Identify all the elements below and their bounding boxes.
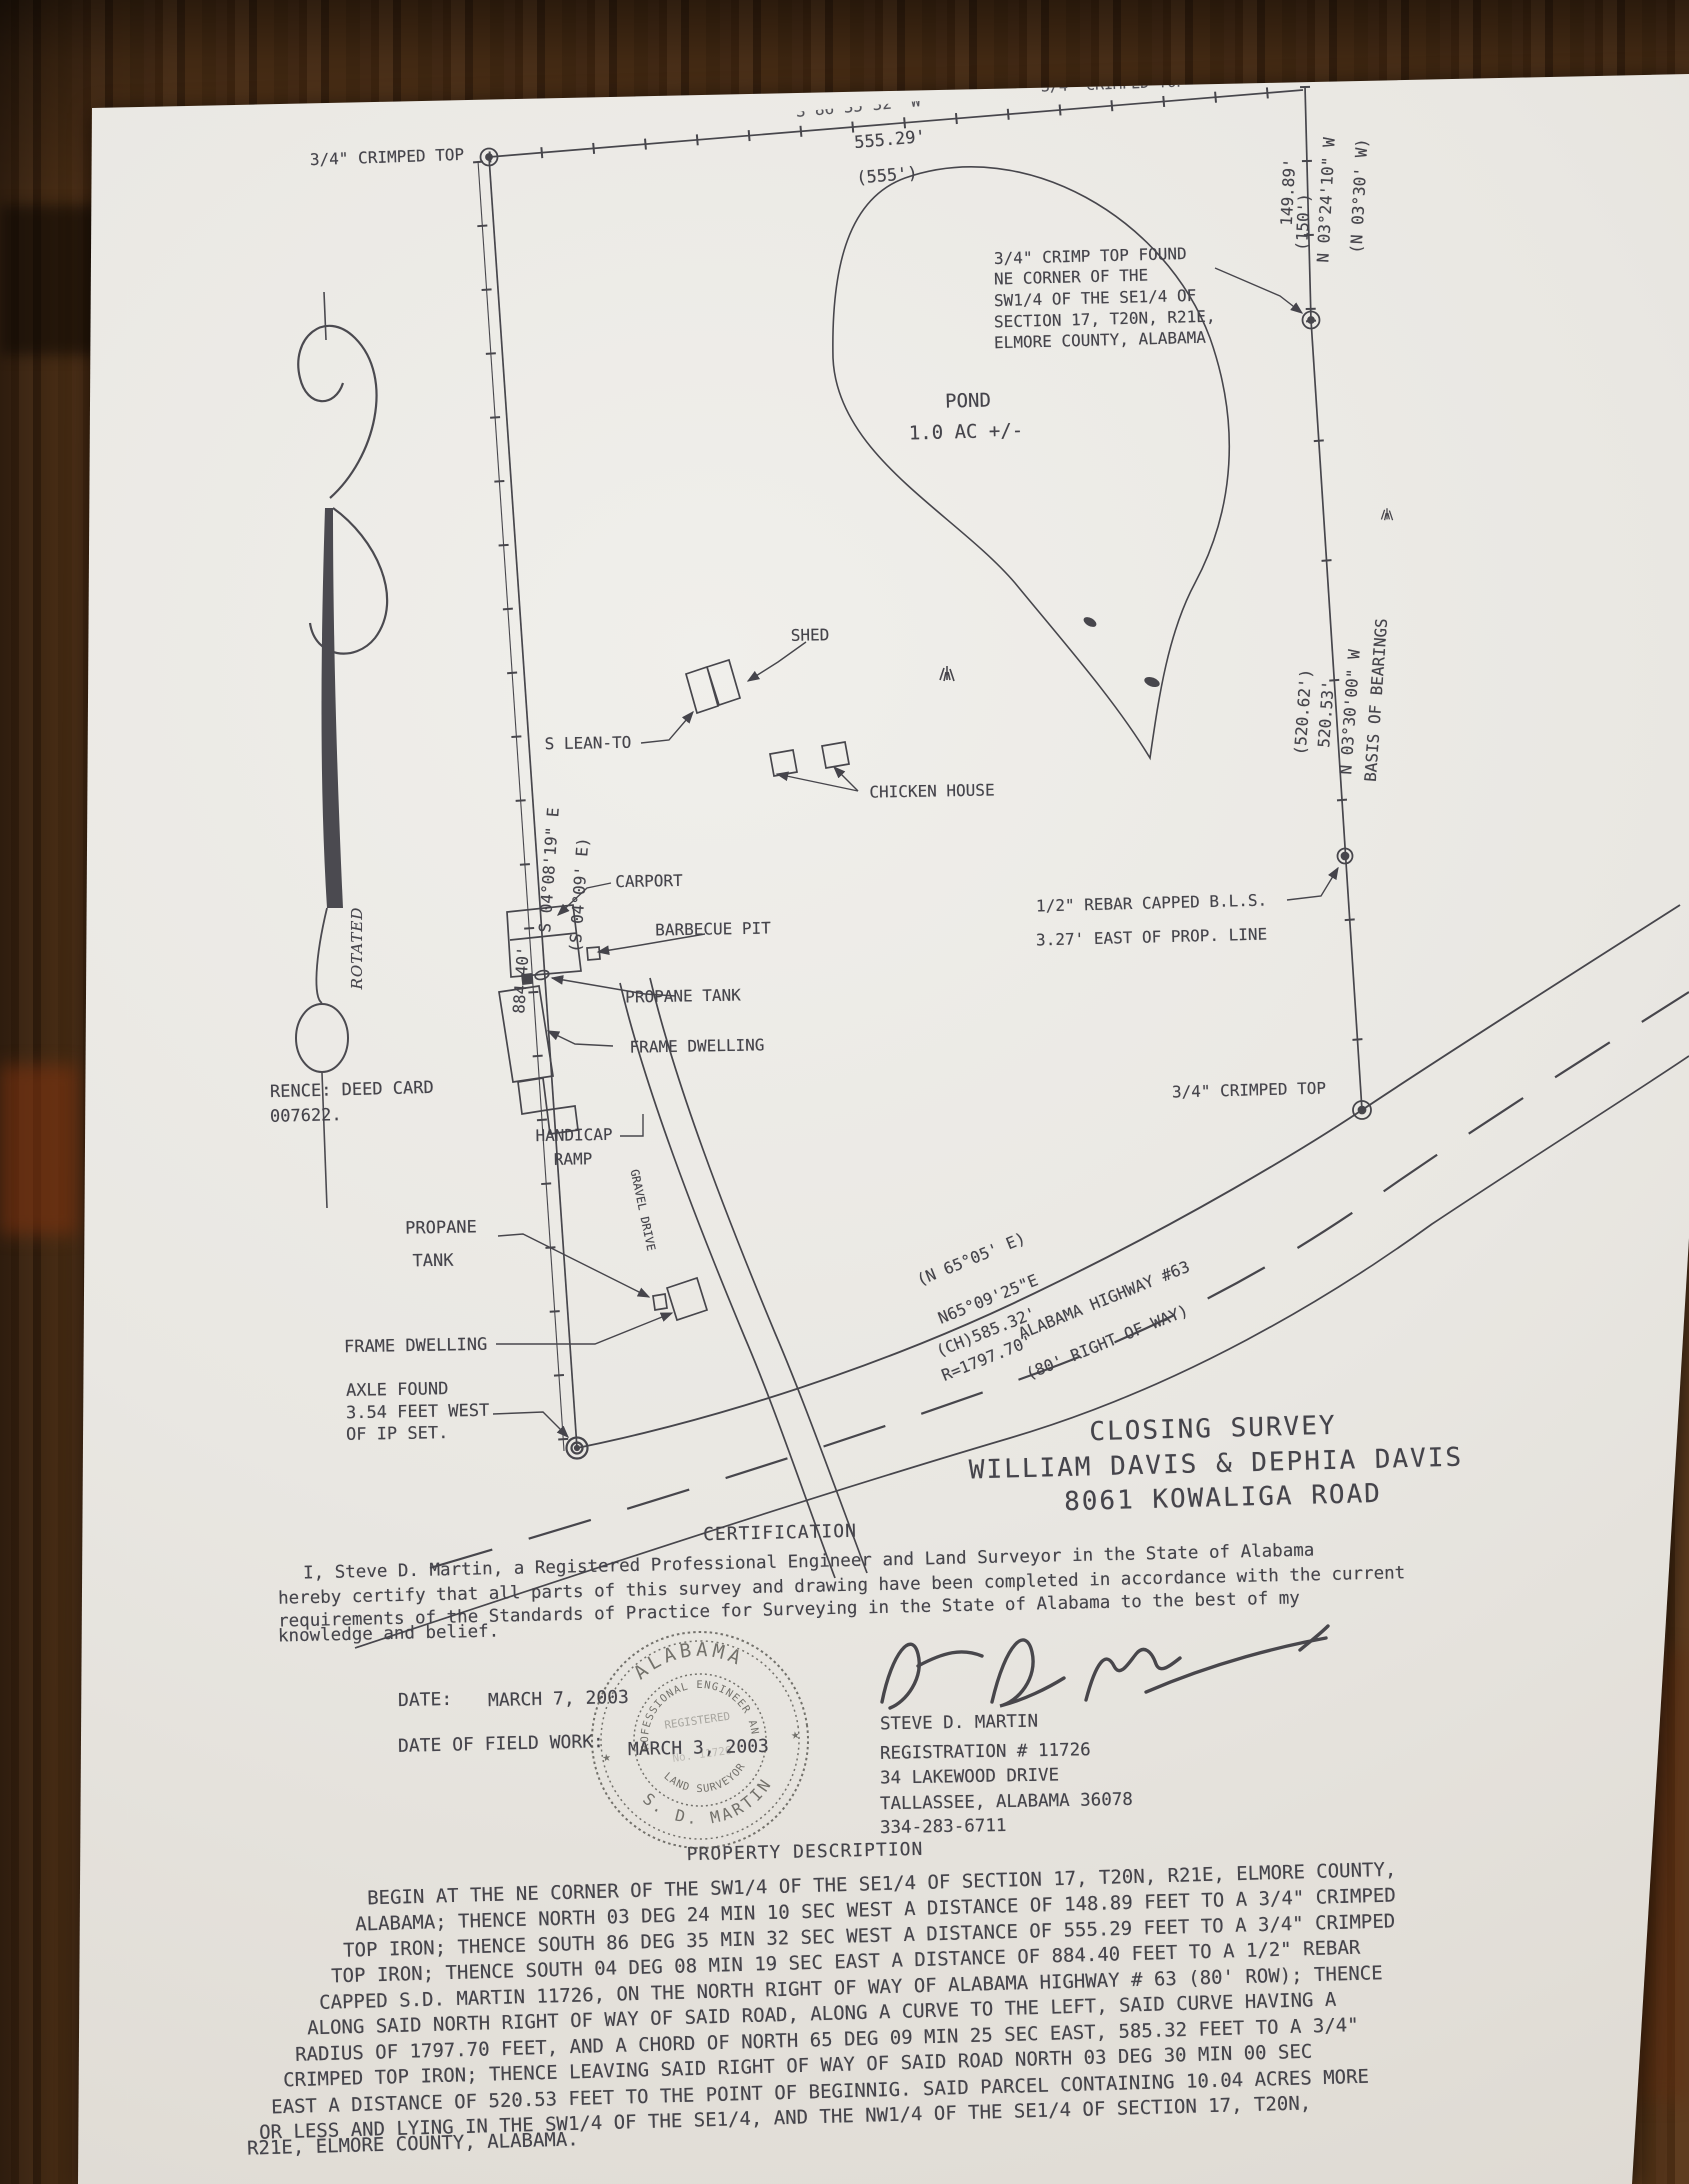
axle-note-3: OF IP SET.	[346, 1423, 449, 1445]
east-line2-bearing: N 03°30'00" W	[1336, 649, 1364, 775]
handicap-label-2: RAMP	[554, 1149, 593, 1169]
rebar-note-1: 1/2" REBAR CAPPED B.L.S.	[1036, 890, 1268, 915]
survey-paper: 3/4" CRIMPED TOPS 86°35'32" W555.29'(555…	[0, 0, 1689, 2184]
pond-area: 1.0 AC +/-	[909, 420, 1024, 445]
frame-dwelling-lower-label: FRAME DWELLING	[344, 1335, 488, 1357]
certification-line-4: knowledge and belief.	[278, 1621, 500, 1646]
fieldwork-label: DATE OF FIELD WORK:	[398, 1731, 604, 1757]
nw-monument-label: 3/4" CRIMPED TOP	[310, 145, 465, 169]
pond-label: POND	[945, 389, 991, 412]
m2-label: 3/4" CRIMPED TOP	[1172, 1078, 1327, 1101]
east-line2-distance: 520.53'	[1314, 680, 1338, 749]
highway-name: ALABAMA HIGHWAY #63	[1016, 1257, 1193, 1343]
north-line-distance: 555.29'	[853, 127, 926, 153]
plat-text-layer: 3/4" CRIMPED TOPS 86°35'32" W555.29'(555…	[0, 0, 1689, 2184]
deed-reference-1: RENCE: DEED CARD	[270, 1078, 434, 1102]
certification-heading: CERTIFICATION	[703, 1521, 857, 1545]
east-line1-bearing: N 03°24'10" W	[1313, 137, 1339, 263]
lean-to-label: S LEAN-TO	[544, 733, 631, 754]
paper-shadow-wrap: 3/4" CRIMPED TOPS 86°35'32" W555.29'(555…	[0, 0, 1689, 2184]
chicken-house-label: CHICKEN HOUSE	[869, 780, 995, 801]
rotated-note: ROTATED	[348, 907, 366, 990]
m1-note-5: ELMORE COUNTY, ALABAMA	[994, 328, 1206, 353]
survey-address: 8061 KOWALIGA ROAD	[1064, 1479, 1382, 1517]
rebar-note-2: 3.27' EAST OF PROP. LINE	[1036, 924, 1268, 949]
west-line-distance: 884.40'	[509, 946, 533, 1015]
date-label: DATE:	[398, 1689, 453, 1711]
fieldwork-value: MARCH 3, 2003	[628, 1736, 769, 1760]
north-line-bearing: S 86°35'32" W	[795, 91, 921, 121]
m1-note-3: SW1/4 OF THE SE1/4 OF	[994, 286, 1197, 310]
surveyor-phone: 334-283-6711	[880, 1816, 1007, 1838]
gravel-drive-label: GRAVEL DRIVE	[628, 1168, 659, 1252]
date-value: MARCH 7, 2003	[488, 1687, 629, 1711]
property-description-heading: PROPERTY DESCRIPTION	[686, 1839, 923, 1865]
surveyor-registration: REGISTRATION # 11726	[880, 1740, 1091, 1764]
axle-note-1: AXLE FOUND	[346, 1379, 449, 1401]
surveyor-street: 34 LAKEWOOD DRIVE	[880, 1765, 1059, 1788]
survey-title: CLOSING SURVEY	[1089, 1411, 1337, 1447]
west-line-bearing: S 04°08'19" E	[535, 807, 563, 933]
west-line-bearing-deed: (S 04°09' E)	[565, 837, 592, 954]
axle-note-2: 3.54 FEET WEST	[346, 1401, 490, 1423]
surveyor-city: TALLASSEE, ALABAMA 36078	[880, 1790, 1133, 1814]
shed-upper-label: SHED	[791, 625, 830, 645]
scanned-survey-photo: 3/4" CRIMPED TOPS 86°35'32" W555.29'(555…	[0, 0, 1689, 2184]
handicap-label-1: HANDICAP	[535, 1125, 612, 1145]
survey-owners: WILLIAM DAVIS & DEPHIA DAVIS	[969, 1443, 1464, 1486]
barbecue-pit-label: BARBECUE PIT	[655, 918, 771, 939]
east-line1-bearing-deed: (N 03°30' W)	[1346, 138, 1371, 254]
propane-lower-label-2: TANK	[412, 1251, 453, 1272]
propane-lower-label-1: PROPANE	[405, 1217, 477, 1238]
propane-tank-upper-label: PROPANE TANK	[625, 985, 741, 1006]
m1-note-1: 3/4" CRIMP TOP FOUND	[994, 244, 1187, 268]
m1-note-2: NE CORNER OF THE	[994, 265, 1149, 288]
east-line2-distance-deed: (520.62')	[1290, 668, 1315, 756]
basis-of-bearings: BASIS OF BEARINGS	[1361, 618, 1391, 783]
northeast-cut-label: 3/4" CRIMPED TOP	[1040, 72, 1185, 95]
deed-reference-2: 007622.	[270, 1105, 342, 1127]
surveyor-name: STEVE D. MARTIN	[880, 1712, 1038, 1735]
frame-dwelling-upper-label: FRAME DWELLING	[629, 1035, 764, 1056]
east-line1-distance-deed: (150')	[1292, 193, 1314, 252]
carport-label: CARPORT	[615, 871, 683, 891]
north-line-distance-deed: (555')	[856, 163, 919, 188]
